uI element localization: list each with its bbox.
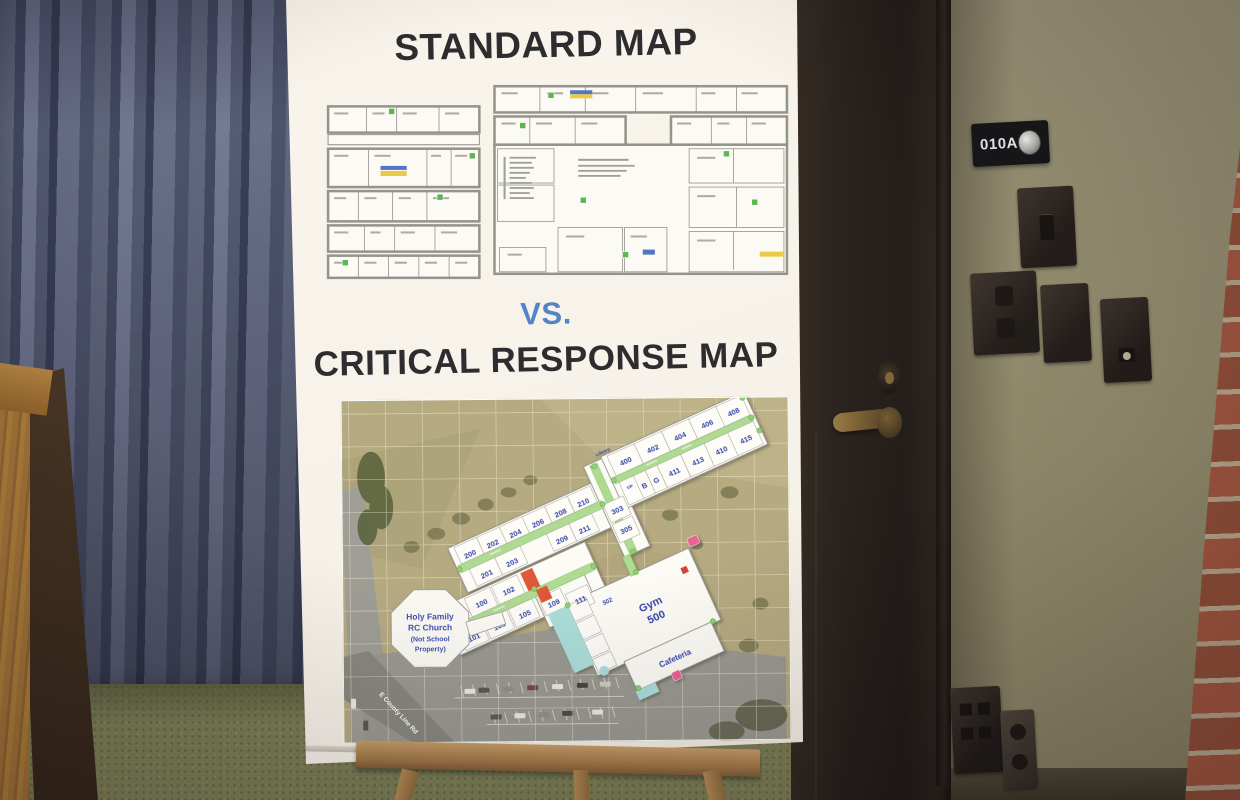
door-frame <box>936 0 951 786</box>
jack-port <box>961 727 974 740</box>
power-outlet-upper <box>970 270 1040 355</box>
vs-label: VS. <box>300 291 793 337</box>
floor-plan-right-wing <box>494 86 786 274</box>
door-handle-rosette <box>877 407 902 438</box>
room-number-sign: 010A <box>971 120 1050 167</box>
poster-title-standard: STANDARD MAP <box>300 19 793 71</box>
braille-seal-icon <box>1017 129 1041 155</box>
deadbolt-keyhole <box>885 372 894 384</box>
standard-floor-plan <box>318 78 792 280</box>
socket <box>1010 724 1027 741</box>
church-label-line: (Not School <box>411 636 450 643</box>
church-label-line: Holy Family <box>406 611 454 621</box>
light-switch <box>1017 186 1077 269</box>
podium-ledge <box>0 362 53 416</box>
socket <box>996 318 1015 339</box>
church-label-line: RC Church <box>408 622 452 632</box>
jack-port <box>979 726 992 739</box>
jack-pin <box>1123 352 1131 360</box>
av-jack-panel <box>950 686 1004 774</box>
duplex-outlet-lower <box>1000 709 1038 789</box>
church-label-line: Property) <box>415 646 446 653</box>
easel-leg-center <box>573 770 589 800</box>
room-number-label: 010A <box>980 135 1019 154</box>
socket <box>1011 754 1028 771</box>
blank-wall-plate <box>1040 283 1092 363</box>
critical-response-map: 200 202 204 206 208 210 201 203 209 211 … <box>341 396 792 744</box>
jack-port <box>978 702 991 715</box>
jack-port <box>960 703 973 716</box>
conference-room-photo: 010A STANDARD MAP <box>0 0 1240 800</box>
poster-title-critical: CRITICAL RESPONSE MAP <box>300 335 793 385</box>
floor-plan-left-wing <box>328 106 479 277</box>
switch-toggle <box>1039 214 1054 241</box>
door-panel-seam <box>815 430 817 800</box>
socket <box>995 286 1014 307</box>
podium-column <box>0 402 30 800</box>
wall-shadow <box>945 0 1015 800</box>
data-jack-plate <box>1100 297 1152 383</box>
